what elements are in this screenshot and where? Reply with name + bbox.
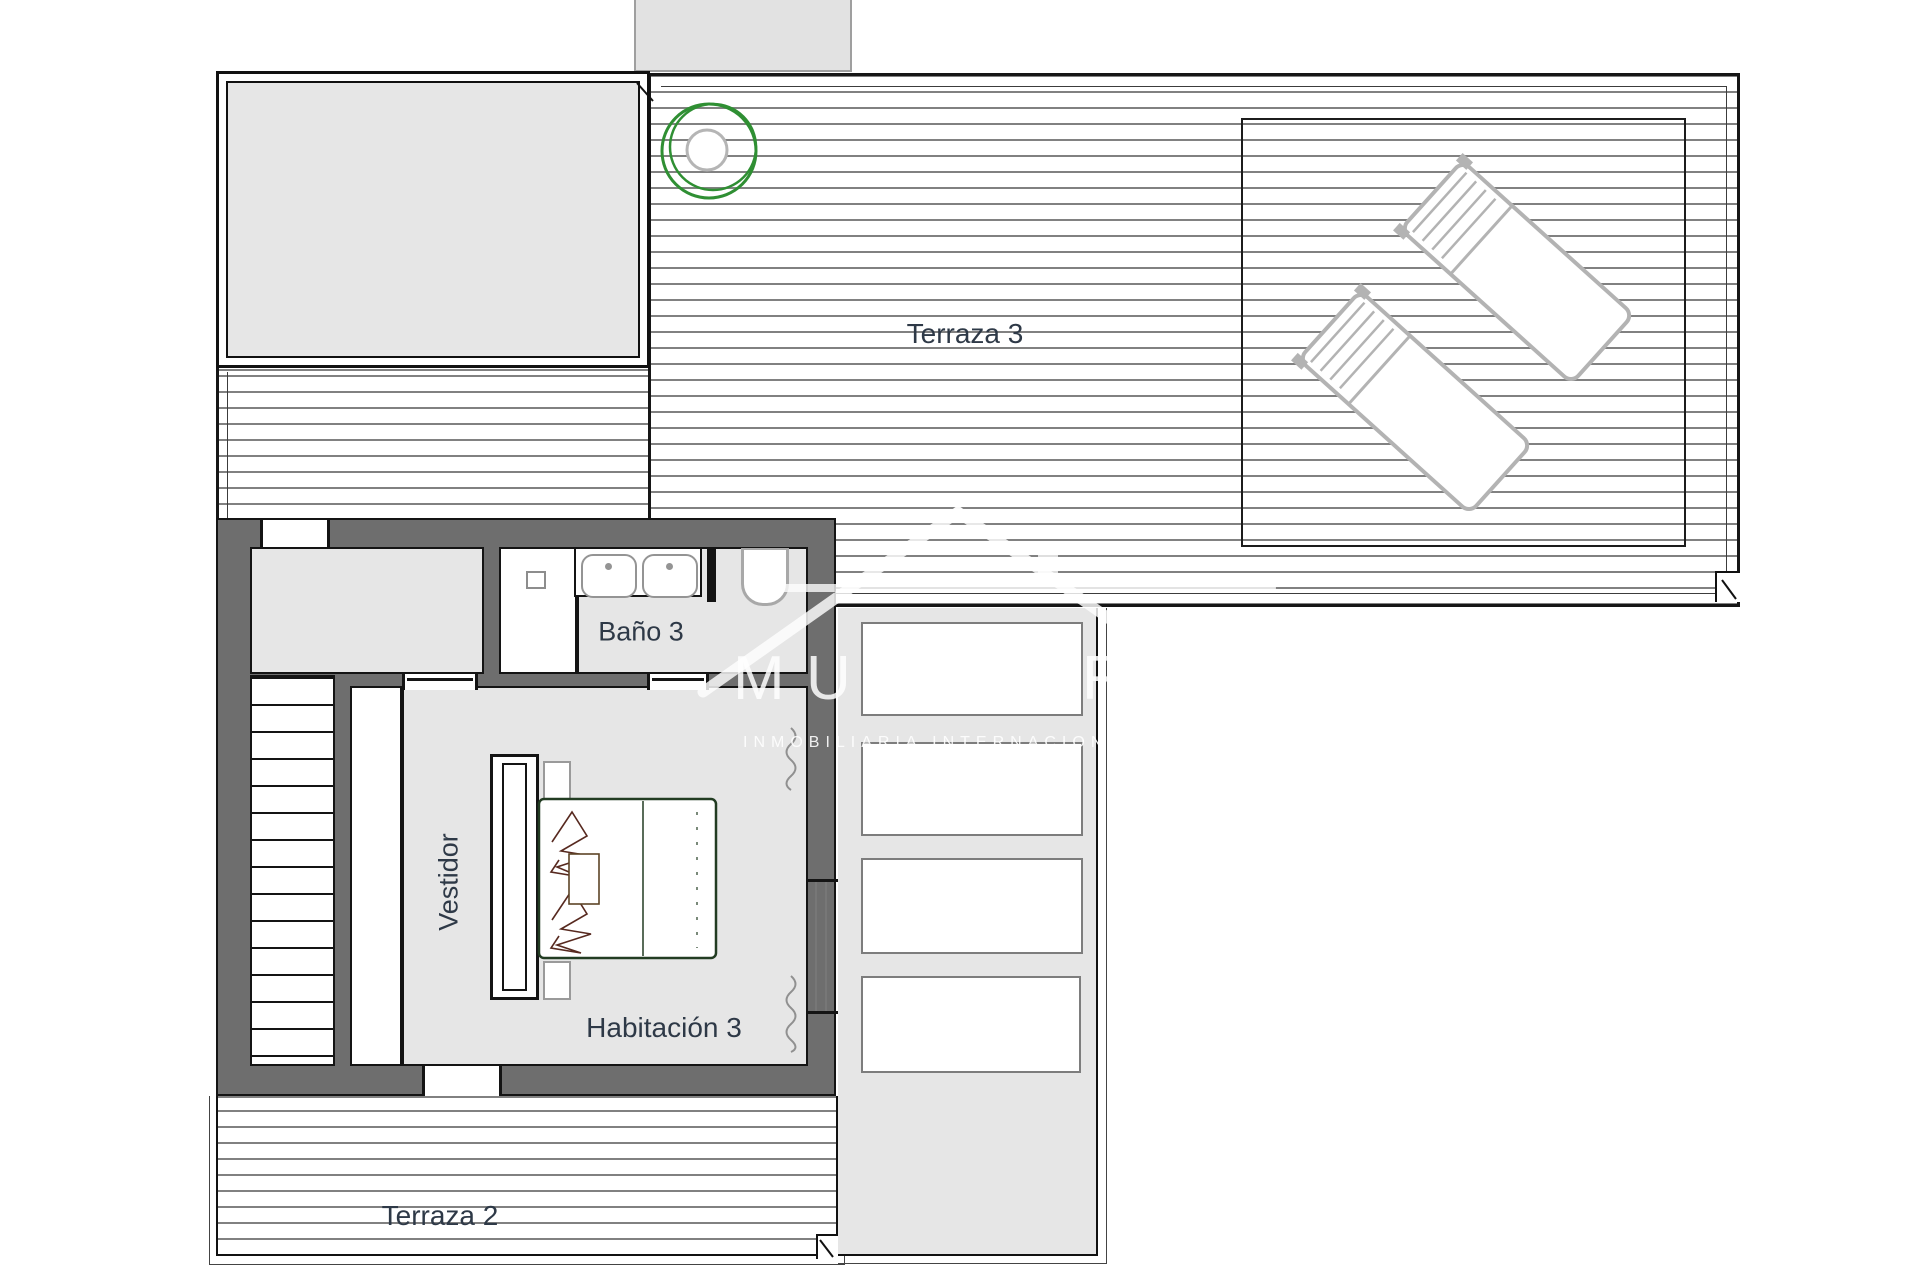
label-habitacion-3: Habitación 3 bbox=[586, 1012, 742, 1044]
skylight-box-1 bbox=[861, 622, 1083, 716]
shower-area bbox=[499, 547, 577, 674]
terraza-2-corner-notch bbox=[816, 1234, 838, 1259]
toilet bbox=[741, 548, 789, 606]
label-terraza-3: Terraza 3 bbox=[907, 318, 1024, 350]
side-passage bbox=[838, 608, 1098, 1256]
skylight-box-3 bbox=[861, 858, 1083, 954]
door-opening-terrace2 bbox=[422, 1066, 502, 1098]
upper-left-room-floor bbox=[226, 81, 640, 358]
label-vestidor: Vestidor bbox=[434, 833, 465, 931]
label-terraza-2: Terraza 2 bbox=[382, 1200, 499, 1232]
label-bano-3: Baño 3 bbox=[598, 617, 684, 648]
nightstand-bottom bbox=[543, 961, 571, 1000]
upper-left-room bbox=[216, 71, 650, 368]
door-bathroom bbox=[647, 674, 709, 690]
terraza-2-deck bbox=[216, 1096, 838, 1256]
bathroom-partition bbox=[707, 548, 716, 602]
window-right-wall bbox=[806, 879, 838, 1014]
floor-plan-canvas: Terraza 3 Baño 3 Vestidor Habitación 3 T… bbox=[0, 0, 1920, 1280]
nightstand-top bbox=[543, 761, 571, 800]
stair-void bbox=[350, 686, 402, 1066]
hall-floor bbox=[250, 547, 484, 674]
skylight-box-2 bbox=[861, 742, 1083, 836]
skylight-box-4 bbox=[861, 976, 1081, 1073]
staircase bbox=[250, 675, 335, 1066]
bedroom-block bbox=[216, 518, 836, 1096]
roof-slab bbox=[634, 0, 852, 72]
terraza-3-deck-strip bbox=[216, 368, 648, 518]
shower-drain bbox=[526, 571, 546, 589]
sink-right bbox=[642, 554, 698, 598]
lounger-zone-outline bbox=[1241, 118, 1686, 547]
door-opening-top bbox=[260, 520, 330, 547]
door-hall-bedroom bbox=[402, 674, 478, 690]
sink-left bbox=[581, 554, 637, 598]
wardrobe-headboard bbox=[490, 754, 539, 1000]
